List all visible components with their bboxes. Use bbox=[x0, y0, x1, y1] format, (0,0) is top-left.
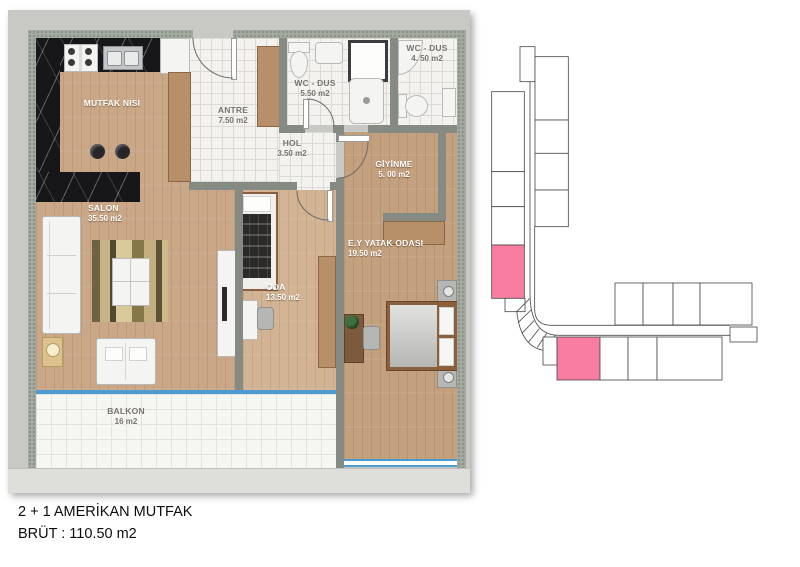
keyplan-unit bbox=[615, 283, 643, 325]
keyplan-stairs-step bbox=[522, 321, 534, 334]
room-label-oda: ODA13.50 m2 bbox=[266, 283, 300, 302]
plan-caption: 2 + 1 AMERİKAN MUTFAK BRÜT : 110.50 m2 bbox=[18, 501, 192, 545]
keyplan-unit bbox=[543, 337, 557, 365]
room-label-antre: ANTRE7.50 m2 bbox=[189, 106, 277, 125]
keyplan-unit bbox=[730, 327, 757, 342]
room-label-salon: SALON35.50 m2 bbox=[88, 204, 122, 223]
keyplan-unit bbox=[628, 337, 657, 380]
keyplan bbox=[480, 30, 800, 390]
room-label-giyinme: GİYİNME5. 00 m2 bbox=[352, 160, 436, 179]
keyplan-stairs-step bbox=[529, 329, 540, 342]
keyplan-unit bbox=[535, 120, 568, 153]
keyplan-unit bbox=[492, 92, 525, 172]
keyplan-unit-highlighted bbox=[492, 245, 525, 298]
keyplan-unit bbox=[520, 47, 535, 82]
screenshot-root: MUTFAK NISI ANTRE7.50 m2 WC - DUS5.50 m2… bbox=[0, 0, 800, 567]
keyplan-unit bbox=[673, 283, 700, 325]
keyplan-unit bbox=[600, 337, 628, 380]
room-label-yatak: E.Y YATAK ODASI19.50 m2 bbox=[348, 239, 423, 258]
plan-type-text: 2 + 1 AMERİKAN MUTFAK bbox=[18, 501, 192, 523]
room-label-hol: HOL3.50 m2 bbox=[262, 139, 322, 158]
keyplan-unit bbox=[535, 153, 568, 190]
keyplan-unit bbox=[643, 283, 673, 325]
keyplan-unit bbox=[505, 298, 525, 311]
room-label-wc2: WC - DUS4. 50 m2 bbox=[398, 44, 456, 63]
keyplan-unit bbox=[535, 57, 568, 120]
gross-area-text: BRÜT : 110.50 m2 bbox=[18, 523, 192, 545]
keyplan-unit bbox=[535, 190, 568, 227]
keyplan-unit bbox=[492, 172, 525, 207]
room-label-mutfak: MUTFAK NISI bbox=[62, 99, 162, 109]
keyplan-unit-highlighted bbox=[557, 337, 600, 380]
room-label-wc1: WC - DUS5.50 m2 bbox=[284, 79, 346, 98]
room-label-balkon: BALKON16 m2 bbox=[76, 407, 176, 426]
keyplan-unit bbox=[700, 283, 752, 325]
keyplan-unit bbox=[657, 337, 722, 380]
keyplan-unit bbox=[492, 207, 525, 245]
